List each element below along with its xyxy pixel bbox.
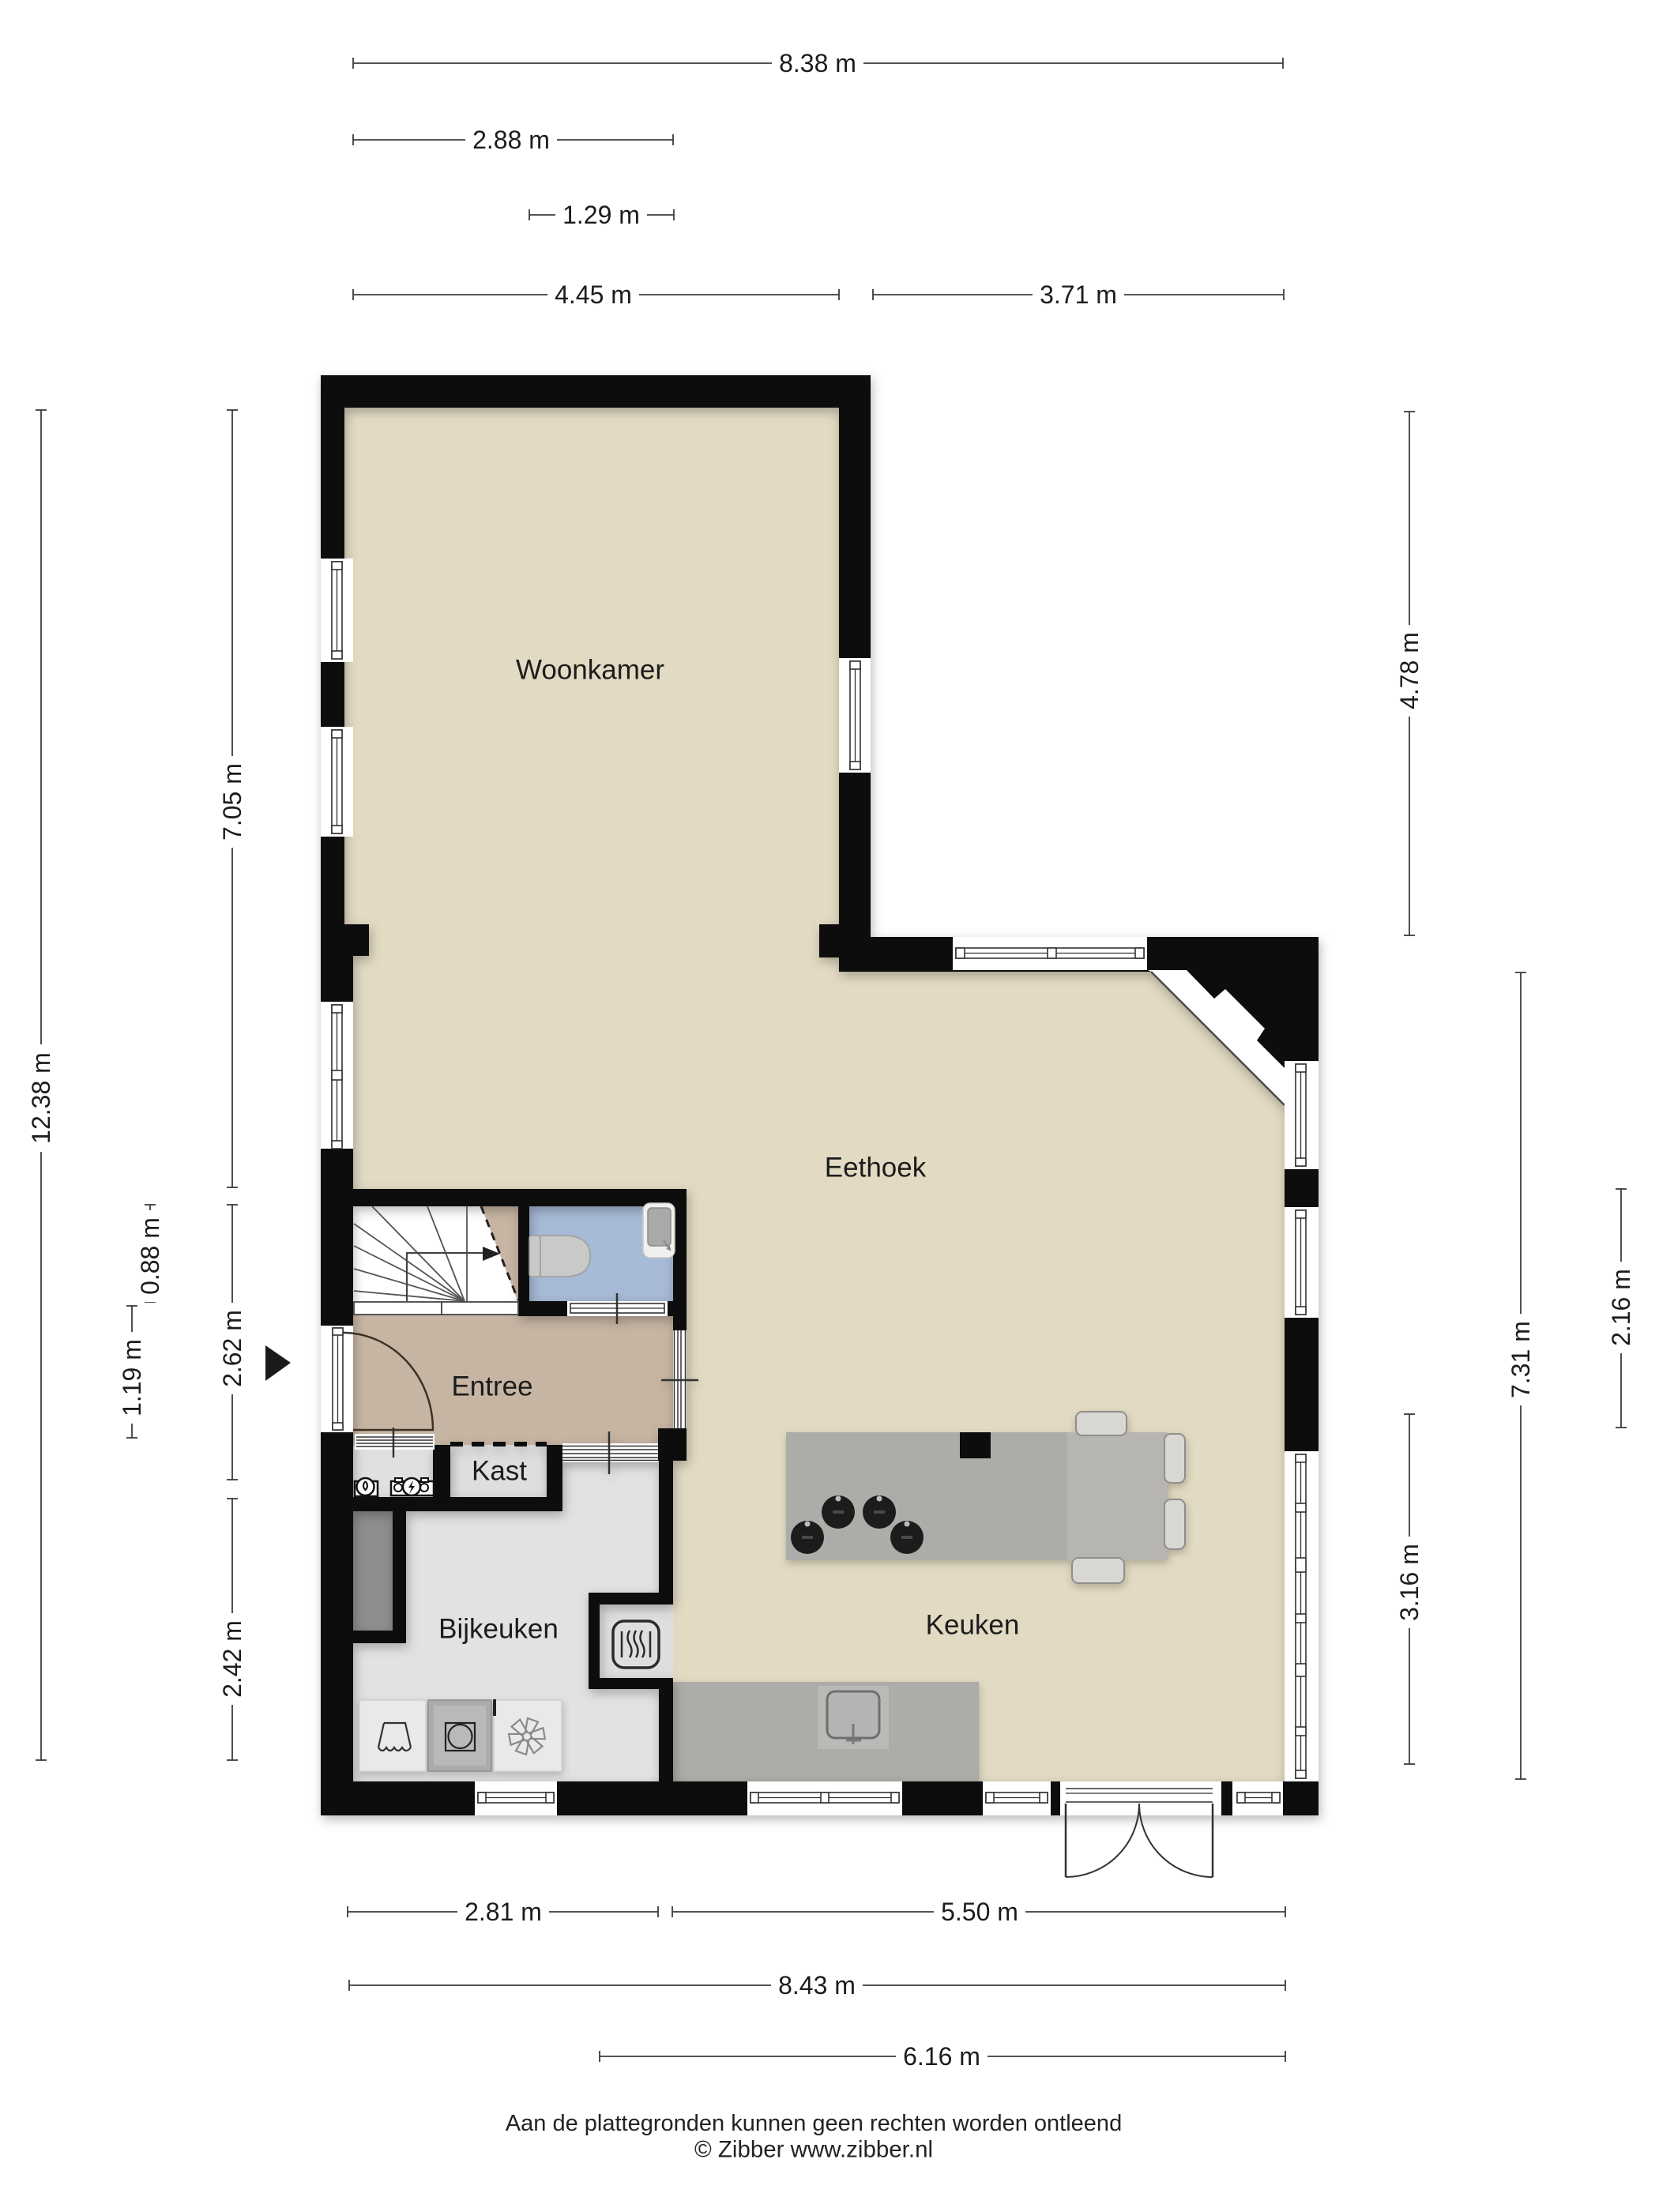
svg-text:Entree: Entree <box>451 1371 532 1402</box>
svg-text:3.16 m: 3.16 m <box>1395 1544 1424 1621</box>
svg-text:6.16 m: 6.16 m <box>903 2042 980 2071</box>
svg-text:7.05 m: 7.05 m <box>218 763 246 841</box>
svg-text:8.43 m: 8.43 m <box>778 1971 856 1999</box>
svg-text:Bijkeuken: Bijkeuken <box>438 1614 559 1645</box>
svg-text:12.38 m: 12.38 m <box>27 1052 55 1144</box>
svg-text:7.31 m: 7.31 m <box>1507 1321 1535 1398</box>
svg-text:2.88 m: 2.88 m <box>472 126 550 154</box>
svg-text:4.78 m: 4.78 m <box>1395 632 1424 709</box>
svg-text:© Zibber www.zibber.nl: © Zibber www.zibber.nl <box>694 2137 933 2163</box>
svg-text:8.38 m: 8.38 m <box>779 49 856 77</box>
svg-text:0.88 m: 0.88 m <box>136 1217 164 1295</box>
svg-text:3.71 m: 3.71 m <box>1040 280 1117 309</box>
svg-text:Keuken: Keuken <box>926 1610 1020 1641</box>
svg-text:Kast: Kast <box>472 1456 527 1487</box>
svg-text:4.45 m: 4.45 m <box>555 280 632 309</box>
svg-text:5.50 m: 5.50 m <box>941 1898 1018 1926</box>
svg-text:2.62 m: 2.62 m <box>218 1310 246 1387</box>
svg-text:1.29 m: 1.29 m <box>562 201 640 229</box>
svg-text:Aan de plattegronden kunnen ge: Aan de plattegronden kunnen geen rechten… <box>506 2111 1122 2136</box>
svg-text:2.81 m: 2.81 m <box>465 1898 542 1926</box>
svg-text:1.19 m: 1.19 m <box>118 1339 146 1416</box>
svg-text:2.42 m: 2.42 m <box>218 1620 246 1698</box>
svg-text:Eethoek: Eethoek <box>825 1153 927 1183</box>
svg-text:Woonkamer: Woonkamer <box>516 655 664 686</box>
svg-text:2.16 m: 2.16 m <box>1607 1269 1635 1346</box>
